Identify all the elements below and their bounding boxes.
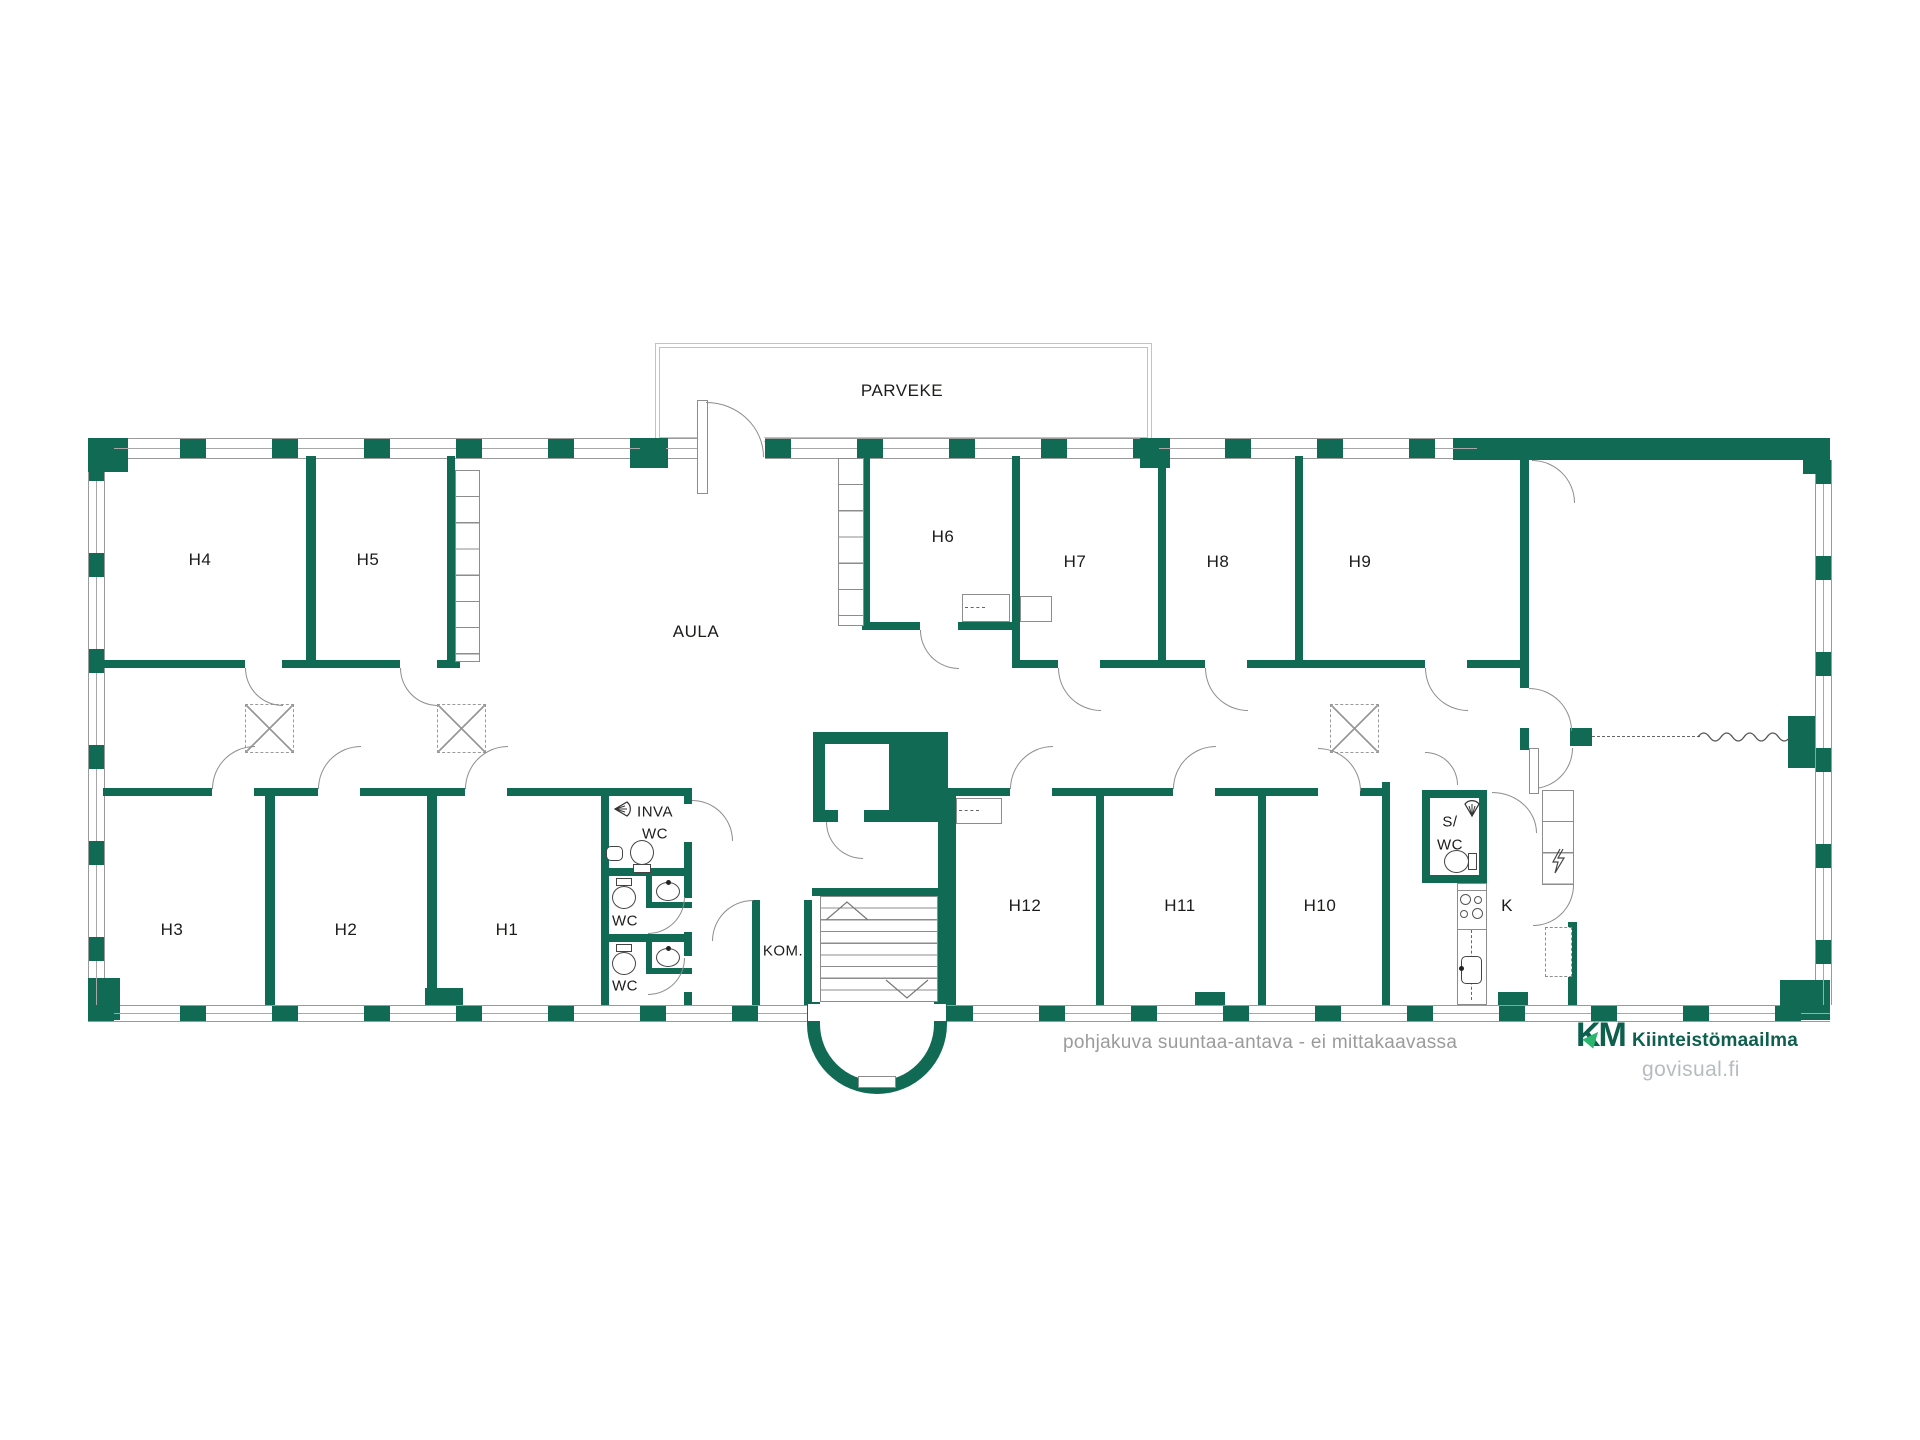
door-h9 (1425, 668, 1468, 711)
wall-corridor2-c (1215, 788, 1318, 796)
tap-dot (666, 880, 671, 885)
wall-h4-bottom (103, 660, 245, 668)
door-rightroom-top (1532, 460, 1575, 503)
room-label-h2: H2 (335, 920, 358, 940)
wall-h2-h1 (427, 796, 437, 1005)
inva-wc-label-1: INVA (637, 804, 673, 821)
wall-corridor-bottom-d (507, 788, 601, 796)
toilet-icon (630, 840, 654, 865)
room-label-h8: H8 (1207, 552, 1230, 572)
stairs-arrow-up (824, 900, 870, 922)
swc-label-1: S/ (1442, 814, 1457, 831)
bay-wall-gap (808, 1004, 946, 1021)
toilet-icon (612, 952, 636, 975)
wall-wc1-bottom (609, 934, 692, 942)
door-h7 (1058, 668, 1101, 711)
wall-h3-h2 (265, 796, 275, 1005)
disclaimer-text: pohjakuva suuntaa-antava - ei mittakaava… (1063, 1032, 1457, 1054)
room-label-h9: H9 (1349, 552, 1372, 572)
shelf-strip-h6 (838, 458, 864, 626)
wall-h8-h9 (1295, 456, 1303, 668)
door-h2 (318, 746, 361, 789)
wall-corridor-bottom-b (254, 788, 318, 796)
tap-dot (666, 946, 671, 951)
wall-corridor-bottom-c (360, 788, 465, 796)
room-label-kom: KOM. (763, 943, 803, 960)
wall-rightroom-left-upper (1520, 456, 1529, 688)
wall-pier (1498, 992, 1528, 1005)
door-kom (712, 900, 753, 941)
window-wall-bottom-right (947, 1005, 1830, 1022)
wc1-label: WC (612, 913, 638, 930)
wall-h4-h5 (306, 456, 316, 668)
toilet-tank (616, 878, 632, 886)
wall-wc-right (684, 876, 692, 898)
door-h8 (1205, 668, 1248, 711)
removed-wall-dashed-line (1592, 736, 1700, 737)
site-name: govisual.fi (1642, 1058, 1740, 1082)
wall-wc-right (684, 796, 692, 804)
wall-pier (1195, 992, 1225, 1005)
stove-burner (1460, 910, 1468, 918)
window-wall-bottom-left (88, 1005, 807, 1022)
room-label-h12: H12 (1009, 896, 1042, 916)
door-h4 (245, 668, 283, 706)
wall-h10-right (1382, 782, 1390, 1005)
cabinet-h6-dash (965, 607, 985, 608)
stairs-arrow-down (884, 978, 930, 1000)
wall-corridor2-b (1052, 788, 1173, 796)
stove-burner (1474, 896, 1482, 904)
wall-stairs-right (938, 822, 948, 1005)
room-label-h3: H3 (161, 920, 184, 940)
cabinet-h12 (956, 798, 1002, 824)
toilet-tank (1468, 853, 1477, 870)
toilet-tank (616, 944, 632, 952)
cabinet-h6 (962, 594, 1010, 622)
stove-burner (1460, 894, 1471, 905)
kitchen-sink-icon (1461, 956, 1482, 984)
shower-icon (1462, 800, 1482, 818)
door-wc2 (648, 958, 685, 995)
stove-burner (1472, 908, 1483, 919)
room-label-aula: AULA (673, 622, 719, 642)
wall-kom-left (752, 900, 760, 1005)
cabinet-aula-side (1020, 596, 1052, 622)
window-wall-left (88, 457, 105, 1005)
wall-stairs-top (812, 888, 938, 896)
wall-wc-left (601, 796, 609, 1005)
wall-h7h8-bottom (1100, 660, 1205, 668)
door-k-corridor (1492, 792, 1537, 833)
brand-name: Kiinteistömaailma (1632, 1030, 1798, 1052)
fridge-box (1545, 927, 1572, 977)
hand-dryer-icon (613, 799, 631, 819)
wall-h5-right (447, 456, 455, 668)
bay-exterior-door (858, 1076, 896, 1088)
wall-h6-bottom-a (862, 622, 920, 630)
door-h11 (1173, 746, 1216, 789)
toilet-icon (1444, 850, 1469, 873)
window-wall-top-left (88, 438, 698, 459)
wall-wc-top (601, 788, 692, 796)
door-h6 (920, 630, 959, 669)
room-label-h5: H5 (357, 550, 380, 570)
sink-icon (606, 846, 623, 861)
solid-wall-top-right (1453, 438, 1830, 460)
closet-xbox (437, 704, 486, 753)
door-h3 (212, 746, 255, 789)
room-label-h10: H10 (1304, 896, 1337, 916)
wall-swc-left (1422, 790, 1430, 883)
door-inva-wc (692, 800, 733, 841)
door-rightroom-mid (1529, 688, 1572, 731)
door-wc1 (648, 897, 685, 934)
wall-corridor2-d (1360, 788, 1382, 796)
wall-h12-h11 (1096, 796, 1104, 1005)
wall-stub (1570, 728, 1592, 746)
toilet-icon (612, 886, 636, 909)
closet-xbox (1330, 704, 1379, 753)
door-h12 (1010, 746, 1053, 789)
room-label-h11: H11 (1164, 896, 1195, 916)
room-label-h7: H7 (1064, 552, 1087, 572)
wall-corridor2-a (948, 788, 1010, 796)
wall-h6-bottom-b (958, 622, 1012, 630)
removed-wall-wavy-line (1698, 729, 1790, 745)
room-label-h4: H4 (189, 550, 212, 570)
wall-h7-h8 (1158, 456, 1166, 668)
wall-h6-right (1012, 456, 1020, 668)
wall-h12-left (948, 796, 956, 1005)
wall-h4h5-bottom (282, 660, 400, 668)
wc2-label: WC (612, 978, 638, 995)
wall-block-wavy-end (1788, 716, 1815, 768)
wall-kom-right (804, 900, 812, 1005)
shelf-strip-h5 (455, 470, 480, 662)
elevator-door-gap (838, 806, 864, 822)
balcony-label: PARVEKE (861, 381, 943, 401)
wall-h7-bottom-a (1020, 660, 1058, 668)
wall-wc-right (684, 992, 692, 1005)
window-wall-right (1815, 460, 1832, 1005)
door-hissi (826, 822, 863, 859)
window-wall-top-mid (765, 438, 1477, 459)
door-h10 (1318, 748, 1361, 791)
door-h5 (400, 668, 438, 706)
wall-swc-top (1422, 790, 1487, 798)
tap-dot (1459, 966, 1464, 971)
wall-swc-bottom (1422, 875, 1487, 883)
wall-h8h9-bottom (1247, 660, 1425, 668)
door-swc-vestibule (1425, 752, 1458, 785)
wall-rightroom-left-stub (1520, 728, 1529, 750)
room-label-h6: H6 (932, 527, 955, 547)
cabinet-h12-dash (959, 810, 979, 811)
elevator-car (825, 744, 889, 810)
electrical-panel-icon (1550, 848, 1566, 874)
floor-plan-canvas: PARVEKE H4 H5 H6 H7 H8 H9 (0, 0, 1920, 1440)
toilet-tank (633, 864, 651, 873)
wall-h11-h10 (1258, 796, 1266, 1005)
k-door-leaf (1529, 748, 1539, 794)
room-label-h1: H1 (496, 920, 519, 940)
wall-h9-bottom (1467, 660, 1520, 668)
wall-corridor-bottom-a (103, 788, 212, 796)
door-k-rightroom (1533, 885, 1574, 926)
room-label-k: K (1501, 896, 1513, 916)
